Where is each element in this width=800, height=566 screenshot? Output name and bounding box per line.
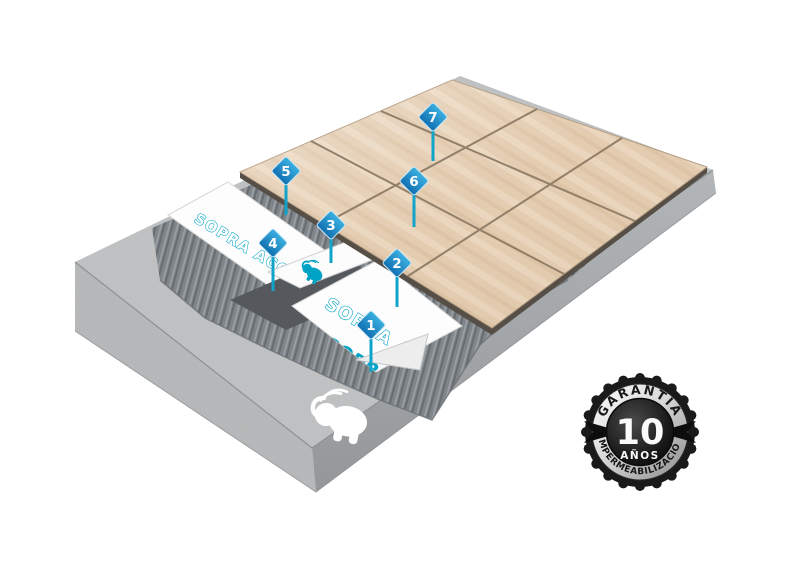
marker-number: 7: [428, 110, 437, 126]
badge-years-label: AÑOS: [620, 449, 659, 462]
marker-number: 1: [366, 318, 375, 334]
badge-number: 10: [616, 413, 665, 453]
marker-number: 3: [326, 218, 335, 234]
marker-number: 4: [268, 236, 277, 252]
marker-number: 6: [409, 174, 418, 190]
marker-number: 5: [281, 164, 290, 180]
guarantee-badge: GARANTÍA 10 AÑOS IMPERMEABILIZACIÓN: [581, 373, 699, 491]
marker-number: 2: [392, 256, 401, 272]
waterproofing-system-diagram: SOPRA ACQUA SOPREMA SOPRA ACQUA SOPREMA: [0, 0, 800, 566]
product-illustration: SOPRA ACQUA SOPREMA SOPRA ACQUA SOPREMA: [0, 0, 800, 566]
